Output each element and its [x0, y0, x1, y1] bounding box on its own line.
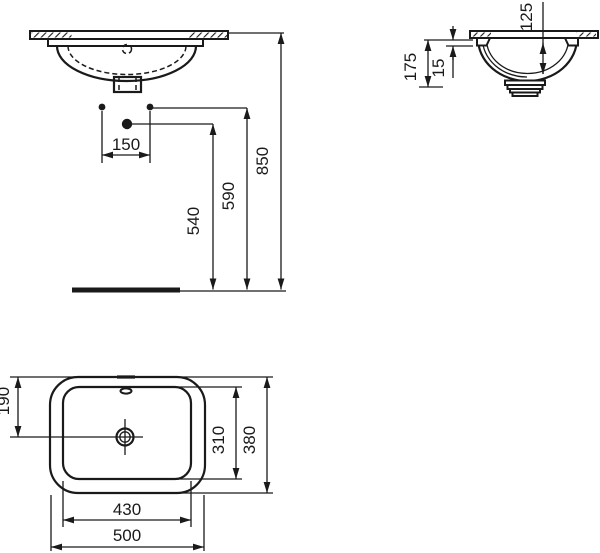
dim-125-label: 125 — [517, 3, 536, 31]
dim-175-label: 175 — [401, 53, 420, 81]
drawing-svg: 150 540 590 850 15 — [0, 0, 600, 553]
dim-430-label: 430 — [113, 500, 141, 519]
fixing-dot-left — [99, 104, 106, 111]
bowl-inner-hidden-edge-front — [68, 46, 186, 74]
dim-190-label: 190 — [0, 387, 13, 415]
basin-inner-outline-top — [63, 387, 191, 479]
dim-500-label: 500 — [113, 526, 141, 545]
side-view: 15 175 125 — [401, 2, 598, 96]
fixing-dot-right — [147, 104, 154, 111]
dim-380-label: 380 — [240, 426, 259, 454]
bowl-outline-front — [57, 46, 196, 81]
overflow-slot-top — [121, 388, 132, 393]
drain-outlet-band-4 — [513, 93, 538, 97]
countertop-hatch-right — [189, 33, 228, 38]
bowl-outline-side — [478, 39, 577, 82]
dim-15-label: 15 — [429, 59, 448, 78]
countertop-hatch-left-side — [472, 33, 491, 37]
dim-590-label: 590 — [219, 182, 238, 210]
drain-boss-front — [114, 77, 141, 92]
countertop-hatch-left — [32, 33, 72, 38]
dim-540-label: 540 — [184, 207, 203, 235]
rim-lip-left-side — [477, 38, 490, 46]
dim-150-label: 150 — [112, 135, 140, 154]
dim-310-label: 310 — [209, 426, 228, 454]
rim-lip-right-side — [565, 38, 578, 46]
front-view: 150 540 590 850 — [30, 31, 286, 291]
countertop-hatch-right-side — [577, 33, 597, 37]
technical-drawing: 150 540 590 850 15 — [0, 0, 600, 553]
bowl-wall-edge-side — [483, 39, 528, 77]
dim-850-label: 850 — [253, 147, 272, 175]
top-view: 190 310 380 430 500 — [0, 377, 273, 551]
